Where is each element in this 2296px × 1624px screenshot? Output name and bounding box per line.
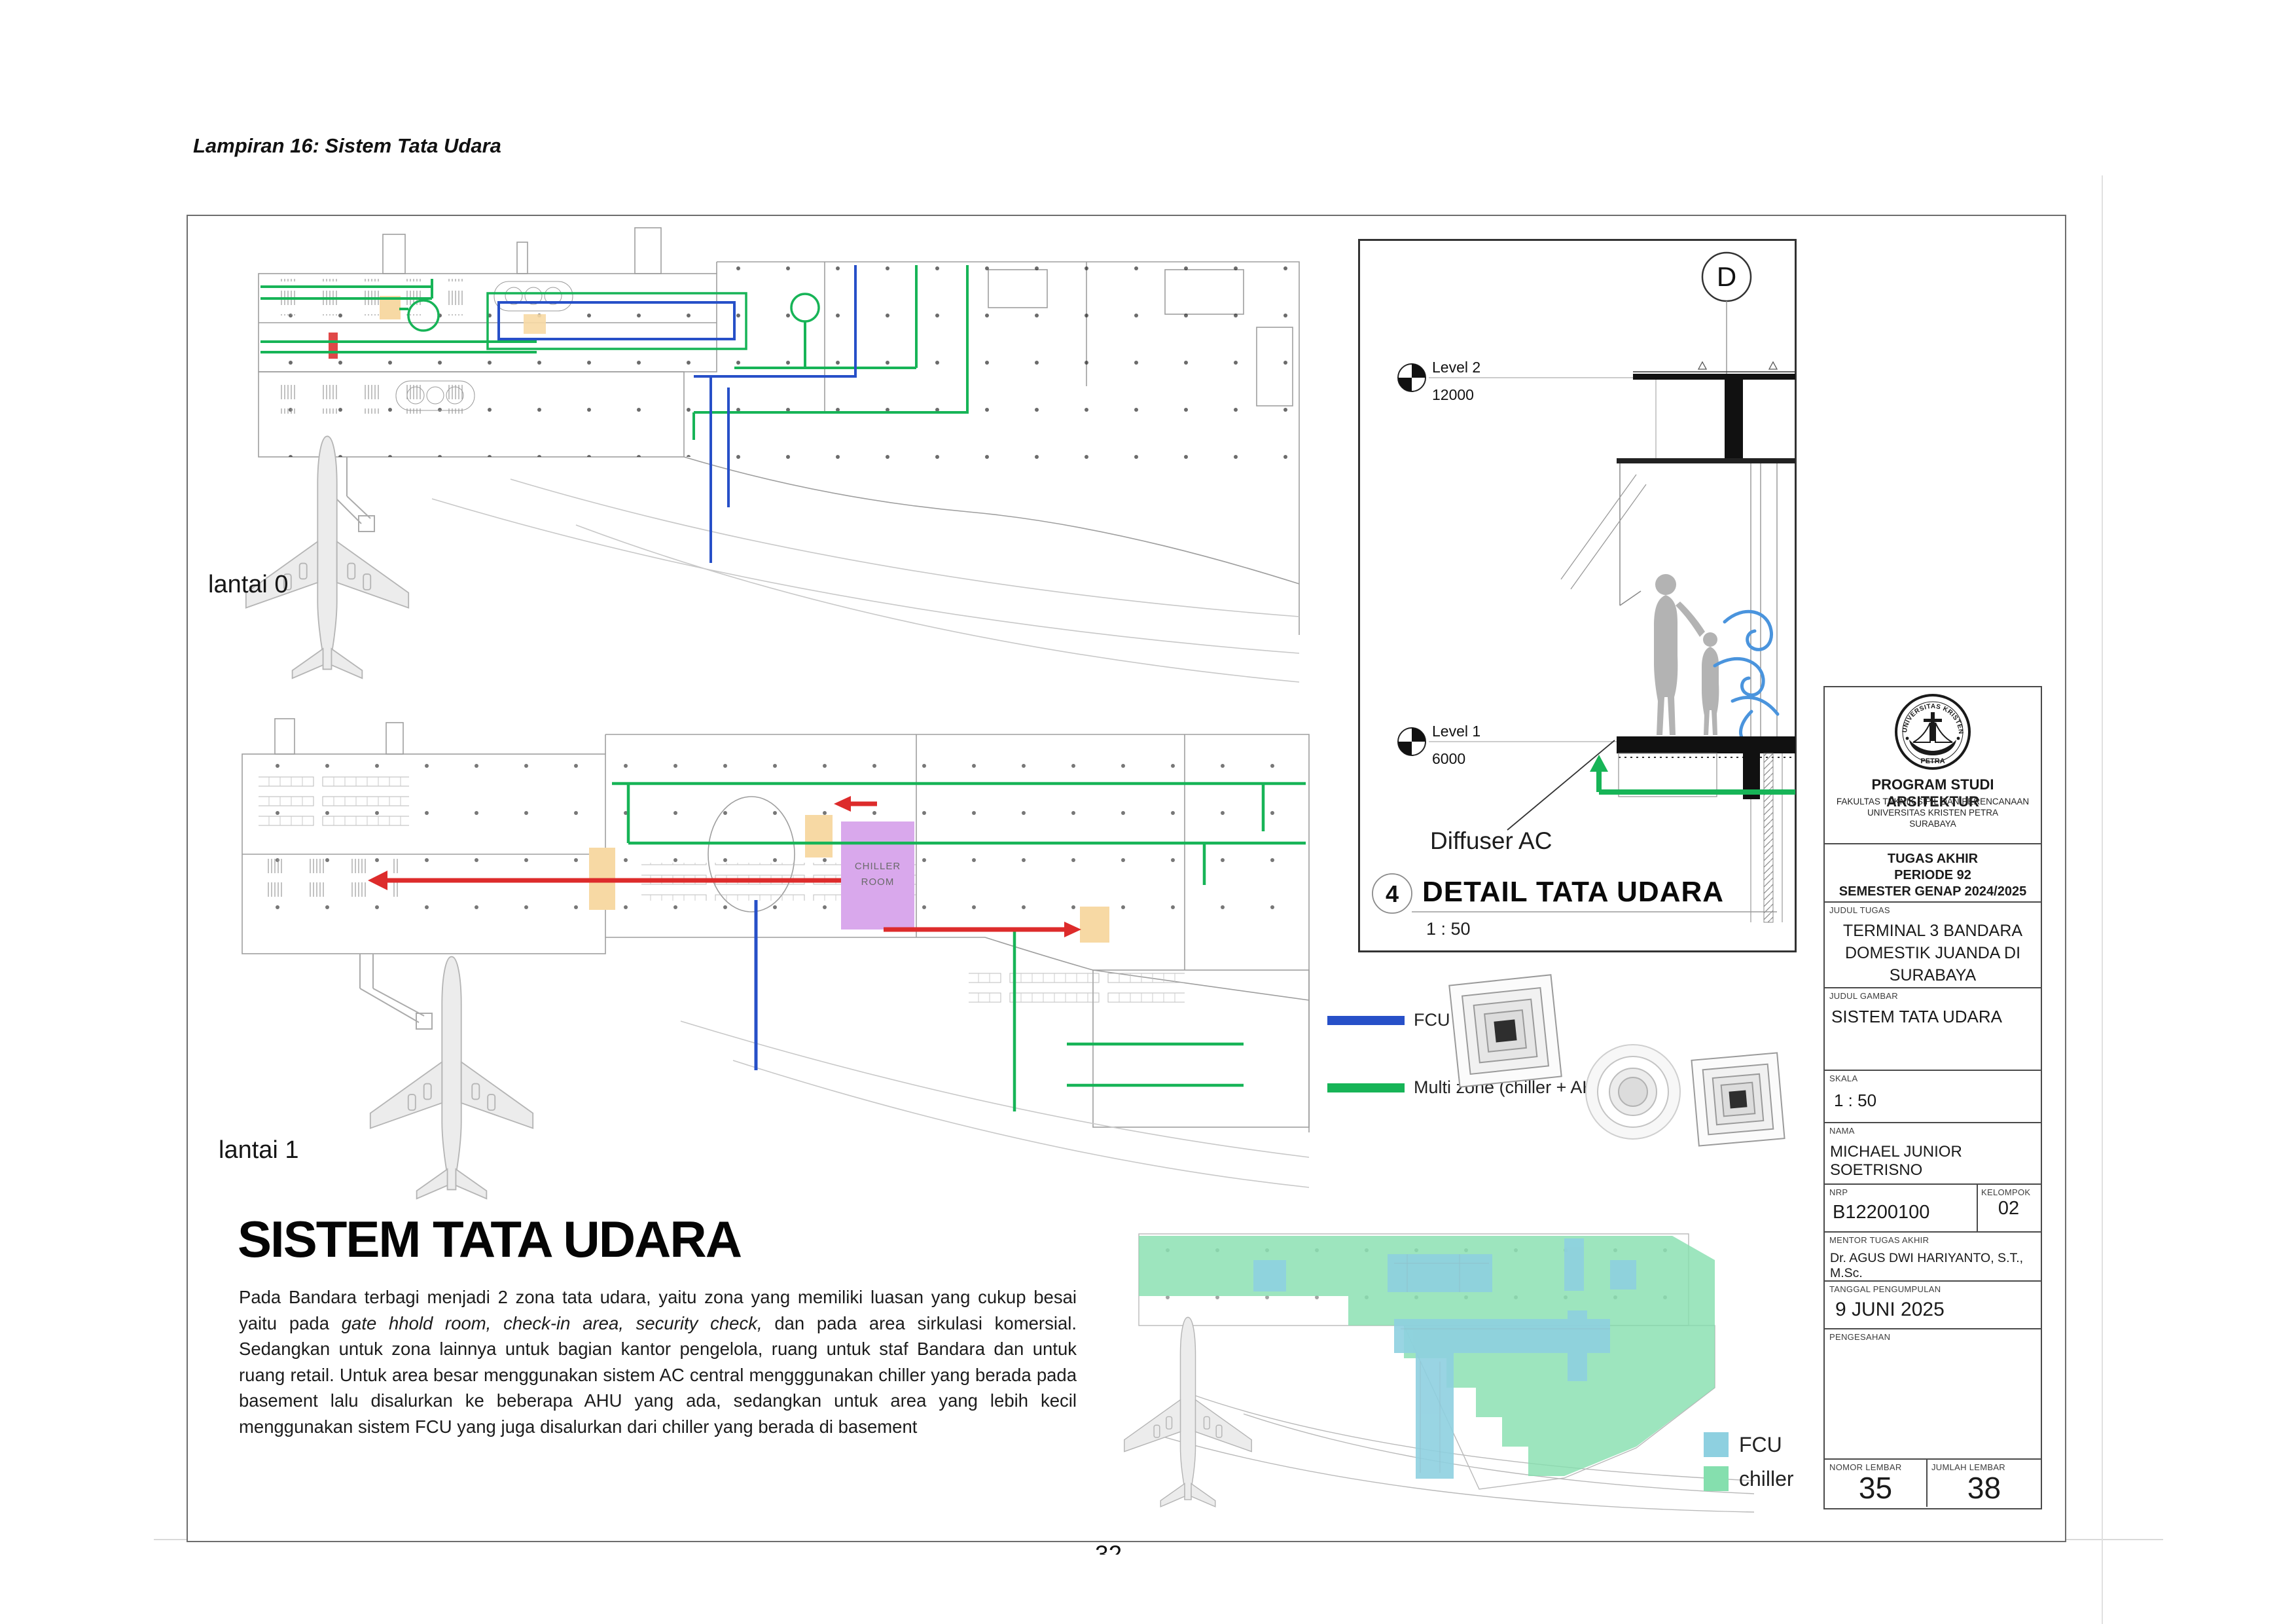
skala-value: 1 : 50 [1834, 1091, 1876, 1111]
zone-legend-chiller: chiller [1704, 1466, 1794, 1491]
judul-tugas-label: JUDUL TUGAS [1829, 905, 1890, 915]
jet-bridge [360, 954, 432, 1029]
jet-bridge [334, 457, 374, 532]
judul-gambar-label: JUDUL GAMBAR [1829, 991, 1898, 1001]
kelompok-label: KELOMPOK [1981, 1187, 2030, 1197]
tanggal-label: TANGGAL PENGUMPULAN [1829, 1284, 1941, 1294]
drawing-sheet-page: Lampiran 16: Sistem Tata Udara [0, 0, 2296, 1624]
plan-lantai0-drawing [236, 216, 1309, 694]
kelompok-value: 02 [1977, 1198, 2041, 1219]
lampiran-title: Lampiran 16: Sistem Tata Udara [193, 134, 501, 158]
tanggal-cell: TANGGAL PENGUMPULAN 9 JUNI 2025 [1825, 1280, 2041, 1328]
level1-label: Level 1 [1432, 723, 1480, 740]
d-marker-letter: D [1717, 261, 1736, 292]
level1-elevation: 6000 [1432, 750, 1465, 767]
diffuser-ac-label: Diffuser AC [1430, 827, 1552, 854]
lantai1-label: lantai 1 [219, 1136, 299, 1164]
judul-gambar-cell: JUDUL GAMBAR SISTEM TATA UDARA [1825, 987, 2041, 1070]
universitas-kristen-petra-logo: UNIVERSITAS KRISTEN PETRA [1893, 693, 1972, 771]
detail-number: 4 [1386, 880, 1399, 907]
red-shaft [329, 333, 338, 359]
page-right-edge [2102, 175, 2103, 1624]
pengesahan-label: PENGESAHAN [1829, 1332, 1890, 1342]
level2-label: Level 2 [1432, 359, 1480, 376]
column-grid-dots [615, 740, 1302, 936]
multizone-line-swatch [1327, 1083, 1405, 1092]
chiller-room-label: ROOM [861, 876, 895, 888]
nama-label: NAMA [1829, 1126, 1855, 1136]
section-heading: SISTEM TATA UDARA [238, 1210, 741, 1269]
fcu-zone-swatch [1704, 1432, 1729, 1457]
description-paragraph: Pada Bandara terbagi menjadi 2 zona tata… [239, 1284, 1077, 1440]
fcu-zone-label: FCU [1739, 1433, 1782, 1457]
detail-title: DETAIL TATA UDARA [1422, 876, 1724, 908]
legend-fcu: FCU [1327, 1010, 1450, 1030]
zoning-plan-drawing [1113, 1198, 1767, 1532]
semester: SEMESTER GENAP 2024/2025 [1825, 884, 2041, 900]
nrp-label: NRP [1829, 1187, 1848, 1197]
nama-cell: NAMA MICHAEL JUNIOR SOETRISNO [1825, 1122, 2041, 1183]
airplane-silhouette [370, 956, 533, 1199]
mentor-label: MENTOR TUGAS AKHIR [1829, 1235, 1929, 1245]
mentor-cell: MENTOR TUGAS AKHIR Dr. AGUS DWI HARIYANT… [1825, 1231, 2041, 1280]
chiller-zone-swatch [1704, 1466, 1729, 1491]
road-curves [432, 479, 1299, 682]
page-number: 32 [1095, 1541, 1141, 1555]
pengesahan-cell: PENGESAHAN [1825, 1328, 2041, 1458]
logo-name-text: PETRA [1920, 757, 1945, 765]
detail-scale: 1 : 50 [1426, 919, 1471, 939]
faculty: FAKULTAS TEKNIK SIPIL DAN PERENCANAAN [1825, 796, 2041, 807]
lantai0-label: lantai 0 [208, 571, 289, 599]
square-diffuser-photo [1443, 969, 1568, 1093]
judul-tugas-cell: JUDUL TUGAS TERMINAL 3 BANDARA DOMESTIK … [1825, 901, 2041, 987]
city: SURABAYA [1825, 818, 2041, 829]
airplane-silhouette [246, 436, 408, 678]
nomor-lembar-value: 35 [1825, 1470, 1926, 1506]
tugas-akhir: TUGAS AKHIR [1825, 851, 2041, 867]
judul-tugas-value: TERMINAL 3 BANDARA DOMESTIK JUANDA DI SU… [1831, 920, 2034, 986]
ahu-zone-orange [805, 815, 833, 857]
lembar-cell: NOMOR LEMBAR 35 JUMLAH LEMBAR 38 [1825, 1458, 2041, 1507]
kiosk-rows [259, 768, 409, 829]
periode: PERIODE 92 [1825, 867, 2041, 884]
kiosk-rows [969, 973, 1185, 1007]
airplane-silhouette [1124, 1317, 1251, 1506]
tanggal-value: 9 JUNI 2025 [1835, 1299, 1945, 1321]
road-curves [681, 1021, 1309, 1187]
chiller-room: CHILLER ROOM [841, 821, 914, 929]
level2-elevation: 12000 [1432, 386, 1474, 403]
tugas-akhir-cell: TUGAS AKHIR PERIODE 92 SEMESTER GENAP 20… [1825, 843, 2041, 901]
title-block: UNIVERSITAS KRISTEN PETRA PROGRAM STUDI … [1823, 686, 2042, 1509]
chiller-zone-label: chiller [1739, 1467, 1794, 1491]
skala-label: SKALA [1829, 1074, 1857, 1083]
ahu-zone-orange [524, 314, 546, 334]
zone-legend-fcu: FCU [1704, 1432, 1782, 1457]
university: UNIVERSITAS KRISTEN PETRA [1825, 807, 2041, 818]
jumlah-lembar-value: 38 [1928, 1470, 2041, 1506]
description-italic: gate hhold room, check-in area, security… [342, 1313, 762, 1333]
titleblock-header-cell: UNIVERSITAS KRISTEN PETRA PROGRAM STUDI … [1825, 687, 2041, 843]
seat-rows [275, 377, 471, 414]
square-diffuser-photo [1687, 1049, 1789, 1150]
tugas-akhir-lines: TUGAS AKHIR PERIODE 92 SEMESTER GENAP 20… [1825, 851, 2041, 900]
plan-lantai1-drawing: CHILLER ROOM [223, 713, 1335, 1211]
column-grid-dots [730, 263, 1299, 479]
nama-value: MICHAEL JUNIOR SOETRISNO [1830, 1143, 2041, 1180]
nrp-kelompok-cell: NRP B12200100 KELOMPOK 02 [1825, 1183, 2041, 1231]
skala-cell: SKALA 1 : 50 [1825, 1070, 2041, 1122]
nrp-value: B12200100 [1833, 1202, 1929, 1223]
faculty-lines: FAKULTAS TEKNIK SIPIL DAN PERENCANAAN UN… [1825, 796, 2041, 829]
chiller-room-label: CHILLER [855, 861, 901, 872]
mentor-value: Dr. AGUS DWI HARIYANTO, S.T., M.Sc. [1830, 1251, 2041, 1281]
round-diffuser-photo [1581, 1039, 1685, 1144]
detail-border [1359, 240, 1796, 952]
judul-gambar-value: SISTEM TATA UDARA [1831, 1007, 2002, 1027]
detail-tata-udara-panel: D Level 2 12000 [1358, 239, 1797, 952]
fcu-line-swatch [1327, 1016, 1405, 1025]
ahu-zone-orange [1080, 907, 1109, 943]
